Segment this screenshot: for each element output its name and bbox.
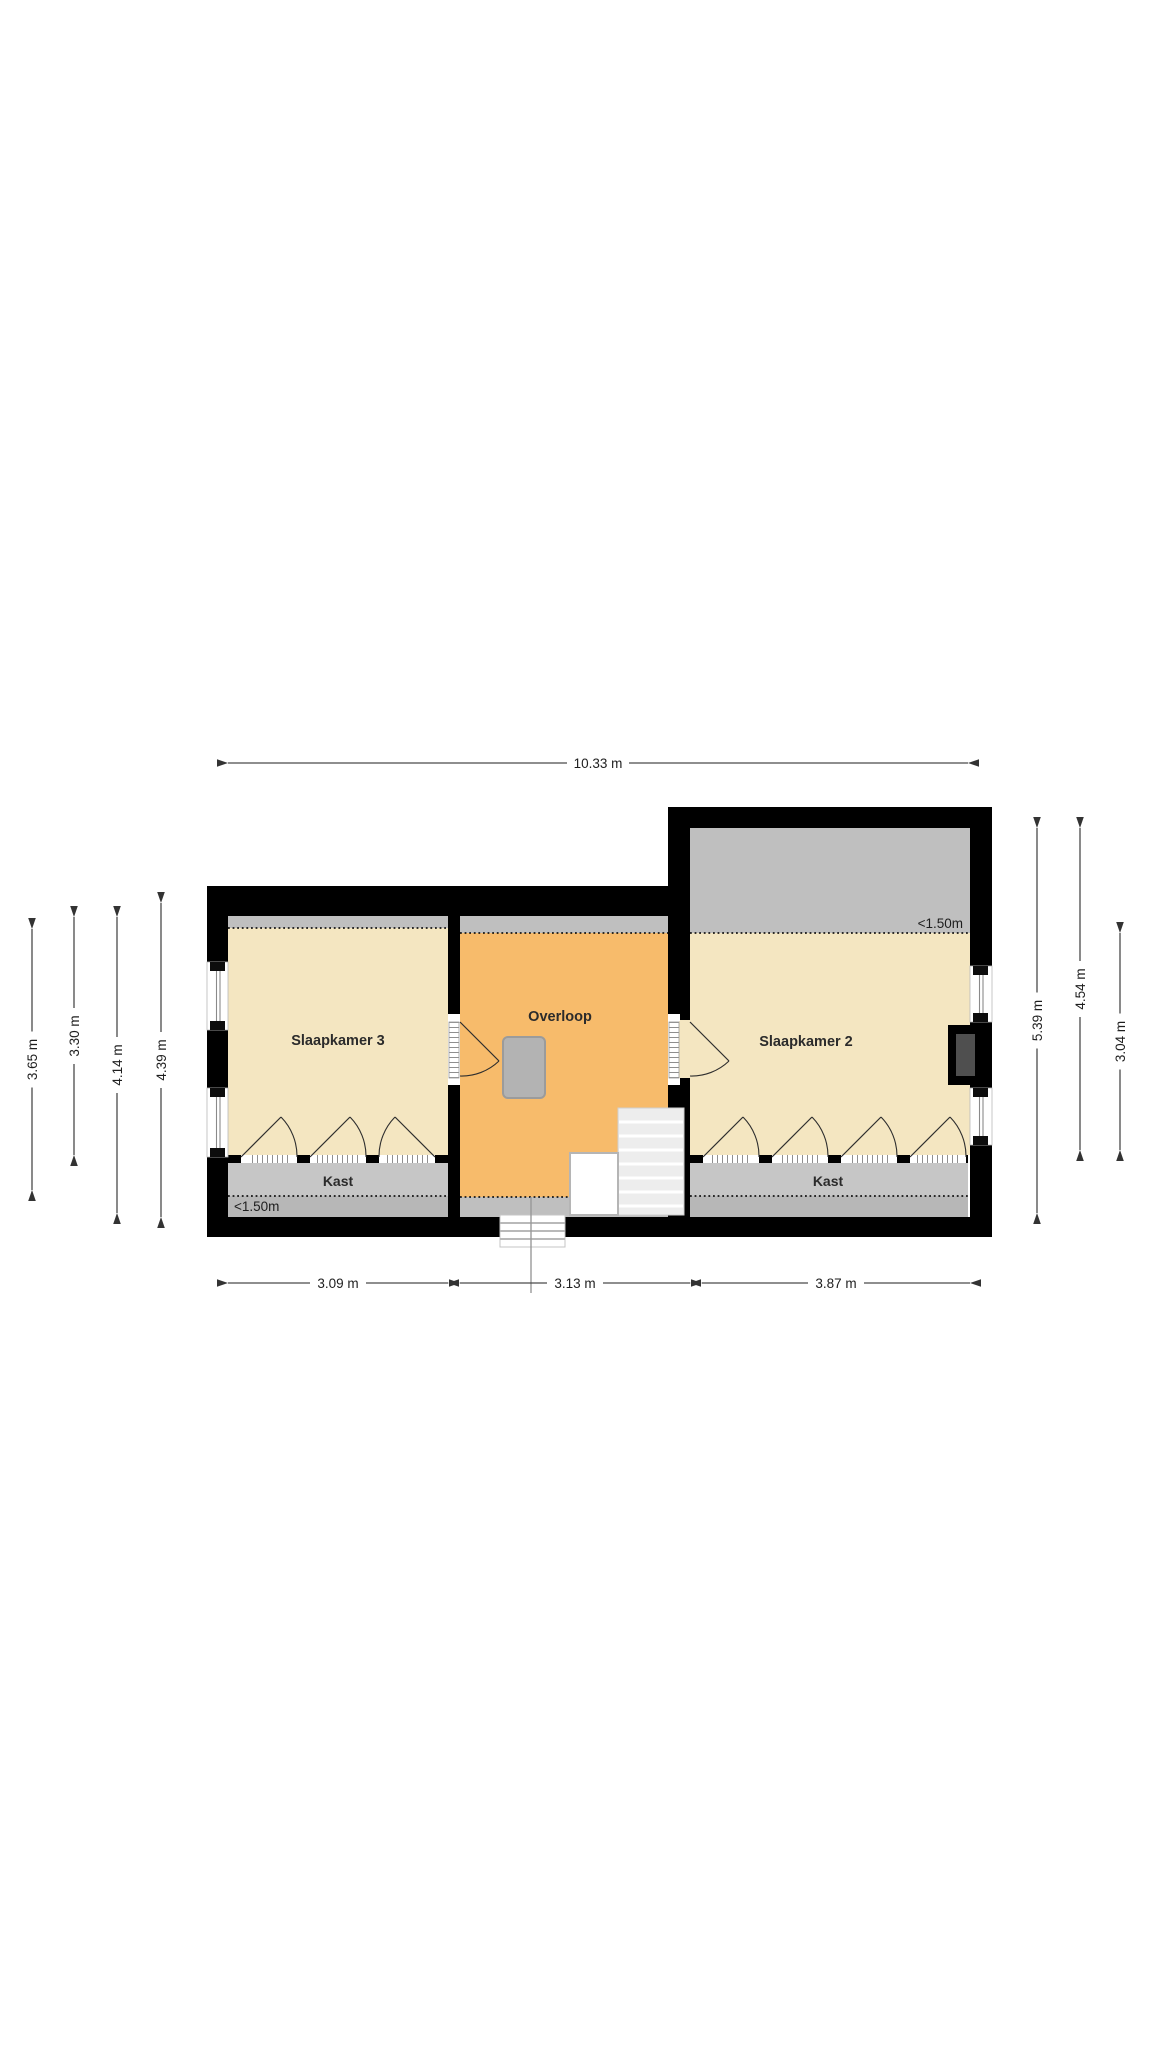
door-opening: [679, 1020, 690, 1078]
door-track-stripes: [917, 1155, 959, 1163]
door-pivot: [448, 1078, 460, 1085]
dim-label-right-2: 4.54 m: [1073, 968, 1088, 1009]
door-track: [669, 1022, 679, 1078]
floorplan-page: Slaapkamer 3 Overloop Slaapkamer 2 Kast …: [0, 0, 1152, 2048]
wall-left-outer-1: [207, 886, 228, 962]
door-track-stripes: [848, 1155, 890, 1163]
door-pivot: [668, 1014, 680, 1021]
entrance-steps: [500, 1215, 565, 1247]
dim-label-bottom-1: 3.09 m: [317, 1276, 358, 1291]
dim-right-3: 3.04 m: [1111, 933, 1130, 1150]
closet-floor-right-low: [690, 1196, 968, 1217]
dim-label-right-1: 5.39 m: [1030, 1000, 1045, 1041]
wall-right-outer-1: [970, 828, 992, 966]
fireplace-inner: [956, 1034, 975, 1076]
wall-top-left-block: [207, 886, 690, 916]
dim-left-4: 4.39 m: [152, 903, 171, 1217]
wall-left-outer-2: [207, 1030, 228, 1088]
dim-label-bottom-3: 3.87 m: [815, 1276, 856, 1291]
dim-bottom-1: 3.09 m: [228, 1273, 448, 1292]
dim-bottom-2: 3.13 m: [460, 1273, 690, 1292]
room-label-slaapkamer2: Slaapkamer 2: [759, 1034, 853, 1050]
dim-bottom-3: 3.87 m: [702, 1273, 970, 1292]
door-track-stripes: [386, 1155, 428, 1163]
dim-label-left-4: 4.39 m: [154, 1039, 169, 1080]
low-ceiling-label-left: <1.50m: [234, 1199, 279, 1214]
dim-label-top: 10.33 m: [574, 756, 623, 771]
door-track-stripes: [779, 1155, 821, 1163]
wall-overloop-slaapkamer2-upper: [668, 933, 690, 1020]
wall-slaapkamer3-overloop-lower: [448, 1078, 460, 1217]
low-ceiling-label-right: <1.50m: [918, 916, 963, 931]
dim-left-3: 4.14 m: [108, 917, 127, 1213]
door-track-stripes: [248, 1155, 290, 1163]
door-pivot: [668, 1078, 680, 1085]
room-label-overloop: Overloop: [528, 1009, 592, 1025]
dim-right-2: 4.54 m: [1071, 828, 1090, 1150]
dim-label-left-1: 3.65 m: [25, 1039, 40, 1080]
stair-flight: [618, 1108, 684, 1215]
dim-top: 10.33 m: [228, 753, 968, 772]
low-ceiling-zone-overloop-top: [460, 916, 668, 933]
window-left-1: [207, 962, 228, 1030]
fireplace: [948, 1025, 992, 1085]
wall-right-block-left-upper: [668, 807, 690, 933]
dim-label-bottom-2: 3.13 m: [554, 1276, 595, 1291]
low-ceiling-zone-slaapkamer3: [228, 916, 448, 928]
dim-right-1: 5.39 m: [1028, 828, 1047, 1213]
window-right-2: [970, 1088, 992, 1145]
dim-label-left-2: 3.30 m: [67, 1015, 82, 1056]
window-right-1: [970, 966, 992, 1022]
door-track-stripes: [317, 1155, 359, 1163]
room-label-kast-left: Kast: [323, 1173, 354, 1189]
door-track: [449, 1022, 459, 1078]
dim-label-right-3: 3.04 m: [1113, 1021, 1128, 1062]
flue-box: [503, 1037, 545, 1098]
wall-bottom-left: [207, 1217, 500, 1237]
wall-slaapkamer3-overloop-upper: [448, 916, 460, 1020]
dim-left-2: 3.30 m: [65, 917, 84, 1155]
stair-treads: [619, 1122, 683, 1206]
room-label-kast-right: Kast: [813, 1173, 844, 1189]
wall-bottom-right: [565, 1217, 992, 1237]
door-track-stripes: [710, 1155, 752, 1163]
window-left-2: [207, 1088, 228, 1157]
stair-landing: [570, 1153, 618, 1215]
dim-left-1: 3.65 m: [23, 929, 42, 1190]
dim-label-left-3: 4.14 m: [110, 1044, 125, 1085]
wall-top-right-block: [668, 807, 992, 828]
room-label-slaapkamer3: Slaapkamer 3: [291, 1033, 385, 1049]
floorplan-canvas: Slaapkamer 3 Overloop Slaapkamer 2 Kast …: [0, 0, 1152, 2048]
door-pivot: [448, 1014, 460, 1021]
